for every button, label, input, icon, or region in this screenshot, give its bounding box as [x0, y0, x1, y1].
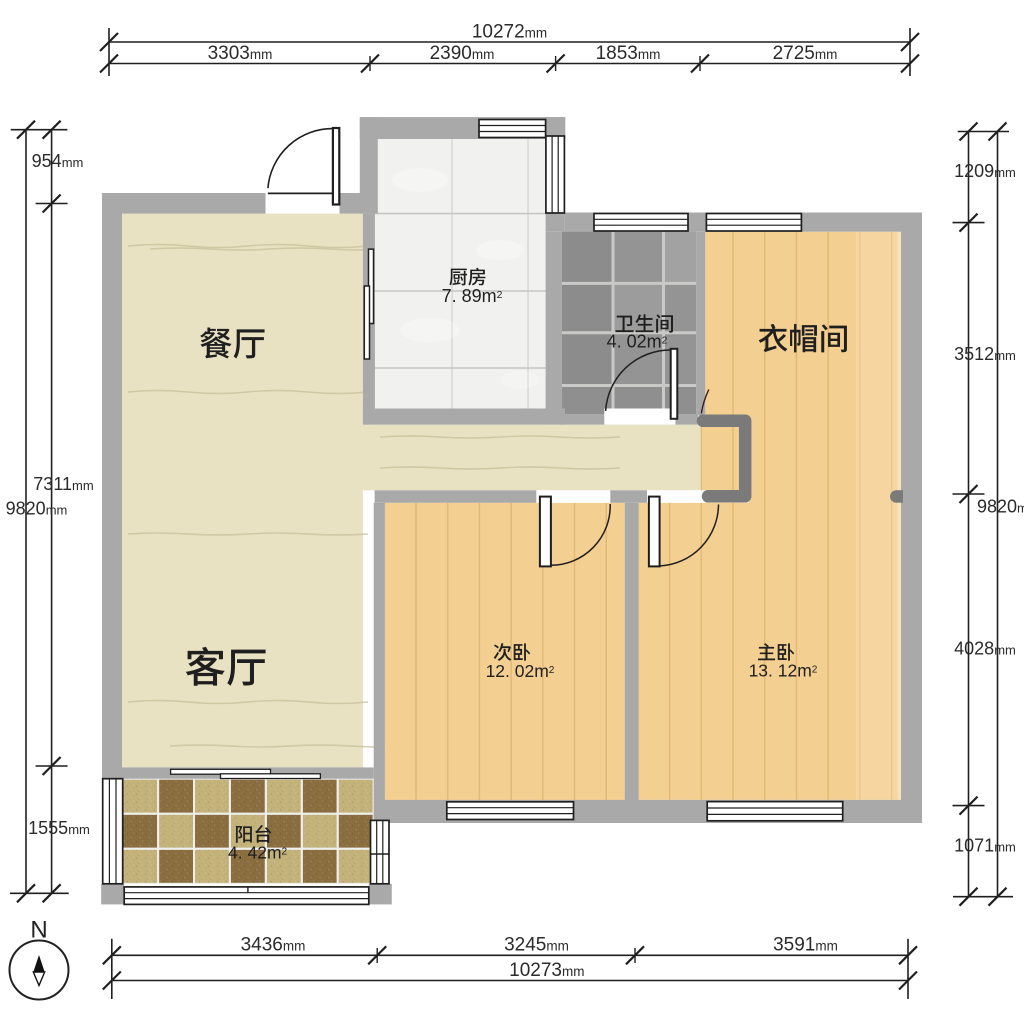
svg-text:3436mm: 3436mm — [241, 935, 306, 956]
svg-text:3245mm: 3245mm — [504, 935, 569, 956]
svg-text:1853mm: 1853mm — [596, 43, 661, 64]
svg-text:4. 02m2: 4. 02m2 — [607, 332, 668, 352]
svg-text:N: N — [30, 917, 47, 944]
svg-text:3303mm: 3303mm — [208, 43, 273, 64]
svg-text:4. 42m2: 4. 42m2 — [228, 843, 288, 863]
svg-text:10272mm: 10272mm — [472, 22, 547, 43]
svg-text:10273mm: 10273mm — [509, 960, 584, 981]
svg-text:2725mm: 2725mm — [773, 43, 838, 64]
svg-text:7. 89m2: 7. 89m2 — [442, 286, 503, 306]
svg-text:2390mm: 2390mm — [430, 43, 495, 64]
svg-text:3591mm: 3591mm — [773, 935, 838, 956]
svg-text:13. 12m2: 13. 12m2 — [749, 661, 818, 681]
svg-text:9820mm: 9820mm — [977, 497, 1024, 517]
svg-text:12. 02m2: 12. 02m2 — [486, 661, 555, 681]
